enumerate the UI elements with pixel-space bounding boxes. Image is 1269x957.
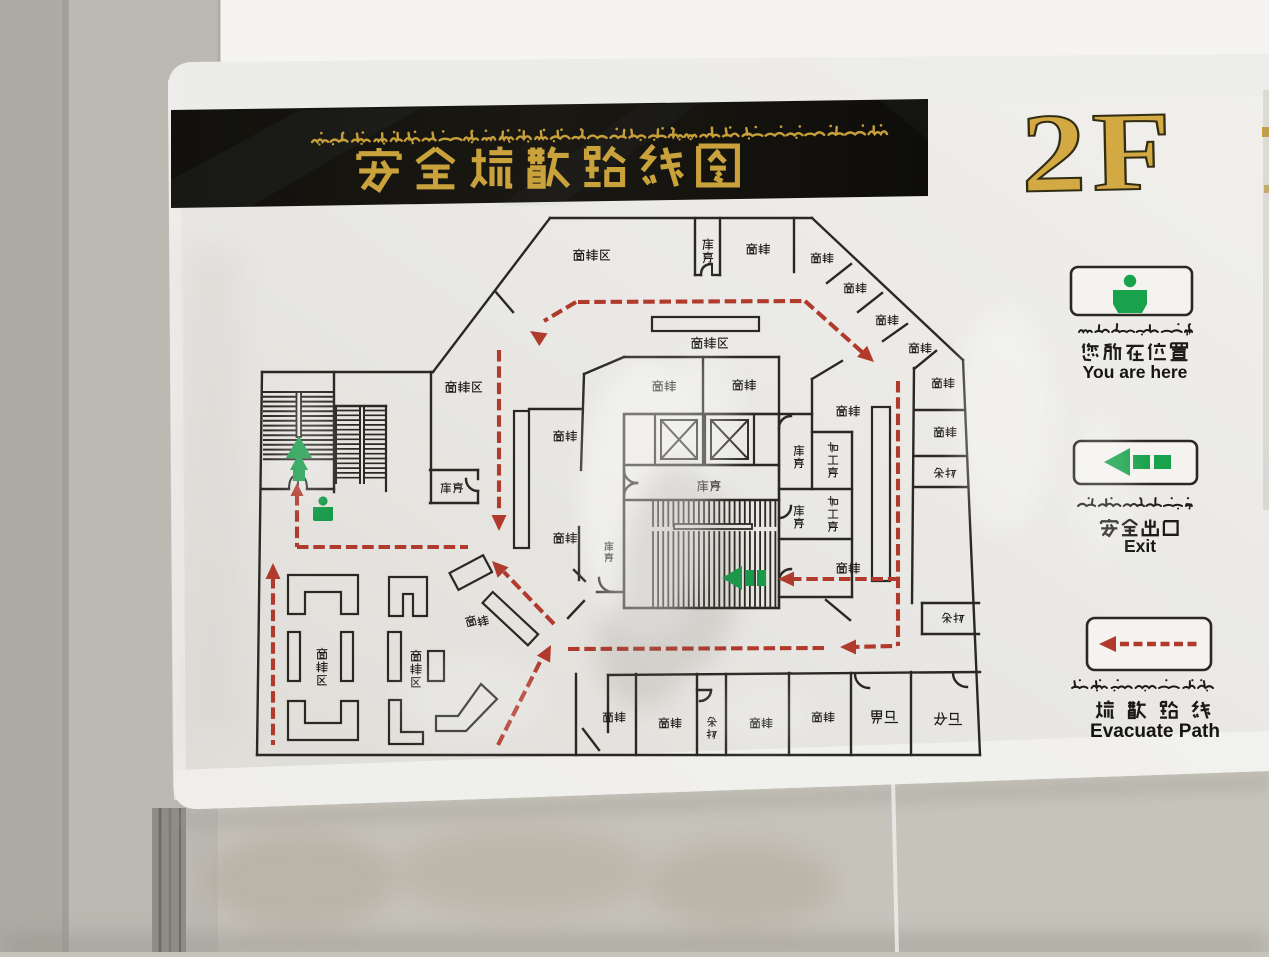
svg-text:Exit: Exit: [1124, 536, 1156, 556]
svg-text:2: 2: [1020, 90, 1088, 217]
svg-text:Evacuate Path: Evacuate Path: [1090, 721, 1220, 742]
svg-text:F: F: [1091, 88, 1173, 215]
svg-text:You are here: You are here: [1083, 362, 1188, 382]
